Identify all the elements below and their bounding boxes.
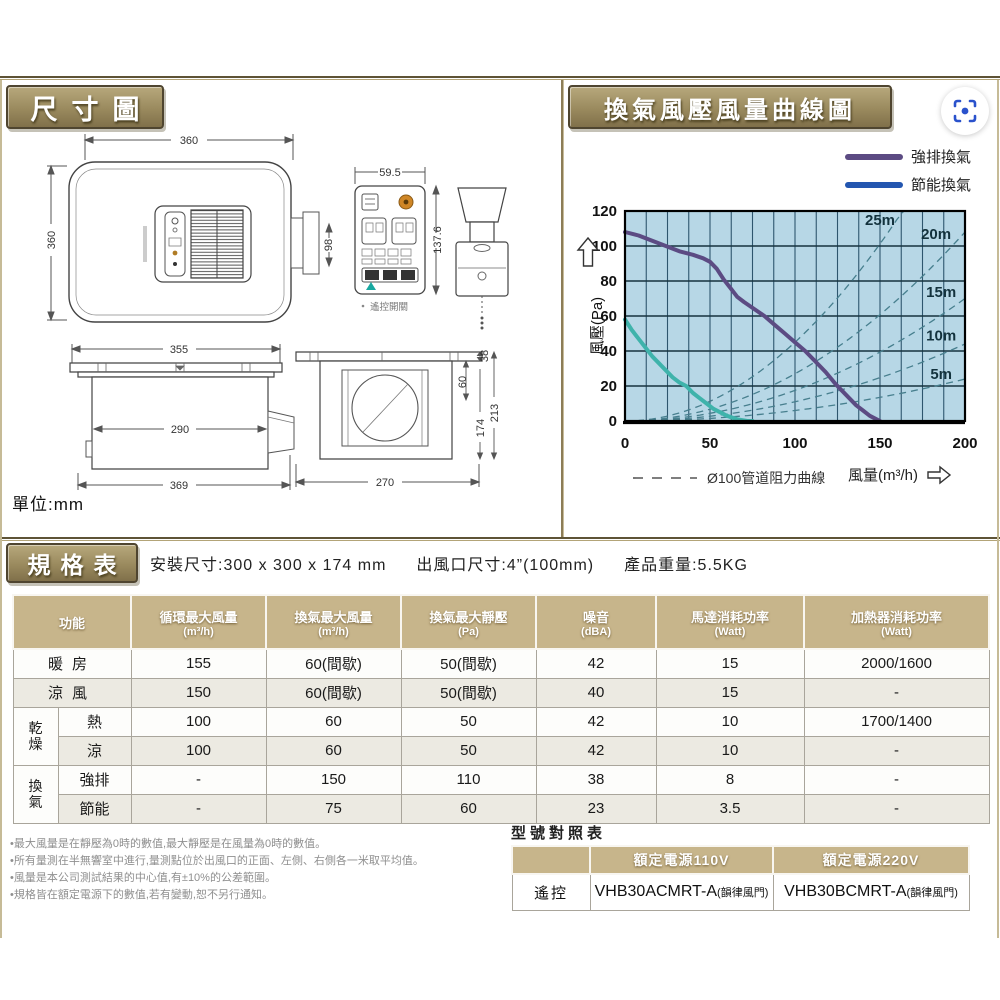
- footnote: •最大風量是在靜壓為0時的數值,最大靜壓是在風量為0時的數值。: [10, 836, 502, 853]
- spec-cell: 10: [656, 736, 804, 765]
- legend-label: 節能換氣: [911, 174, 971, 195]
- model-table-title: 型號對照表: [511, 822, 606, 843]
- dim-label: 38: [479, 350, 491, 362]
- resistance-curve-legend: Ø100管道阻力曲線: [633, 468, 825, 488]
- spec-cell: 50(間歇): [401, 649, 536, 678]
- spec-row: 涼10060504210-: [13, 736, 989, 765]
- function-label: 涼: [58, 736, 131, 765]
- spec-cell: 3.5: [656, 794, 804, 823]
- x-axis-label-text: 風量(m³/h): [848, 464, 918, 485]
- frame-mid-line: [0, 537, 1000, 541]
- spec-row: 換 氣強排-150110388-: [13, 765, 989, 794]
- spec-cell: 60: [266, 707, 401, 736]
- x-tick: 100: [782, 435, 807, 452]
- spec-cell: 8: [656, 765, 804, 794]
- dim-label: 213: [489, 404, 501, 422]
- legend-item: 強排換氣: [845, 146, 971, 167]
- footnote: •規格皆在額定電源下的數值,若有變動,恕不另行通知。: [10, 887, 502, 904]
- spec-cell: 75: [266, 794, 401, 823]
- dim-label: 360: [46, 231, 58, 249]
- y-tick: 120: [592, 203, 617, 220]
- section-title-spec: 規格表: [6, 543, 138, 583]
- spec-cell: -: [804, 678, 989, 707]
- dim-label: 137.6: [432, 226, 444, 254]
- section-title-curve: 換氣風壓風量曲線圖: [568, 85, 892, 129]
- col-header-function: 功能: [13, 595, 131, 649]
- function-group: 乾 燥: [13, 707, 58, 765]
- resistance-curve-label: 10m: [926, 328, 956, 345]
- model-row: 遙控 VHB30ACMRT-A(韻律風門) VHB30BCMRT-A(韻律風門): [512, 874, 969, 910]
- frame-divider: [561, 80, 564, 537]
- x-tick: 200: [952, 435, 977, 452]
- spec-cell: 40: [536, 678, 656, 707]
- spec-cell: -: [804, 794, 989, 823]
- function-label: 強排: [58, 765, 131, 794]
- right-arrow-icon: [926, 465, 952, 485]
- resistance-curve-label: 5m: [930, 366, 952, 383]
- install-size: 安裝尺寸:300 x 300 x 174 mm: [150, 551, 386, 575]
- col-header-noise: 噪音(dBA): [536, 595, 656, 649]
- spec-row: 節能-7560233.5-: [13, 794, 989, 823]
- function-label: 熱: [58, 707, 131, 736]
- col-header-static-pressure: 換氣最大靜壓(Pa): [401, 595, 536, 649]
- dim-label: 59.5: [379, 167, 400, 179]
- spec-cell: 23: [536, 794, 656, 823]
- x-axis-label: 風量(m³/h): [848, 464, 952, 485]
- unit-label: 單位:mm: [12, 490, 84, 515]
- x-tick: 150: [867, 435, 892, 452]
- col-header-circ-flow: 循環最大風量(m³/h): [131, 595, 266, 649]
- legend-swatch-strong: [845, 154, 903, 160]
- function-label: 涼風: [13, 678, 131, 707]
- resistance-curve-label: 15m: [926, 284, 956, 301]
- footnote: •所有量測在半無響室中進行,量測點位於出風口的正面、左側、右側各一米取平均值。: [10, 853, 502, 870]
- col-header-vent-flow: 換氣最大風量(m³/h): [266, 595, 401, 649]
- legend-item: 節能換氣: [845, 174, 971, 195]
- spec-cell: 42: [536, 649, 656, 678]
- x-tick: 0: [621, 435, 629, 452]
- col-header-motor-power: 馬達消耗功率(Watt): [656, 595, 804, 649]
- footnotes: •最大風量是在靜壓為0時的數值,最大靜壓是在風量為0時的數值。 •所有量測在半無…: [10, 836, 502, 904]
- legend-label: 強排換氣: [911, 146, 971, 167]
- model-header-110v: 額定電源110V: [590, 846, 773, 874]
- dim-label: 270: [376, 477, 394, 489]
- frame-right-edge: [997, 80, 999, 938]
- y-tick: 20: [600, 378, 617, 395]
- spec-cell: 110: [401, 765, 536, 794]
- spec-cell: 50(間歇): [401, 678, 536, 707]
- spec-table: 功能 循環最大風量(m³/h) 換氣最大風量(m³/h) 換氣最大靜壓(Pa) …: [12, 594, 990, 824]
- dim-label: 174: [475, 419, 487, 437]
- pq-chart: 5m10m15m20m25m02040608010012005010015020…: [572, 196, 992, 461]
- y-axis-label: 風壓(Pa): [589, 297, 606, 355]
- spec-cell: -: [804, 765, 989, 794]
- spec-cell: 60(間歇): [266, 678, 401, 707]
- footnote: •風量是本公司測試結果的中心值,有±10%的公差範圍。: [10, 870, 502, 887]
- spec-cell: 15: [656, 678, 804, 707]
- spec-cell: 1700/1400: [804, 707, 989, 736]
- spec-cell: 155: [131, 649, 266, 678]
- lens-icon: [952, 98, 978, 124]
- spec-cell: 15: [656, 649, 804, 678]
- spec-cell: 150: [131, 678, 266, 707]
- y-tick: 80: [600, 273, 617, 290]
- spec-table-body: 暖房15560(間歇)50(間歇)42152000/1600涼風15060(間歇…: [13, 649, 989, 823]
- spec-cell: -: [131, 794, 266, 823]
- spec-cell: 60(間歇): [266, 649, 401, 678]
- spec-header-row: 功能 循環最大風量(m³/h) 換氣最大風量(m³/h) 換氣最大靜壓(Pa) …: [13, 595, 989, 649]
- dim-label: 369: [170, 480, 188, 492]
- function-label: 暖房: [13, 649, 131, 678]
- spec-cell: 50: [401, 707, 536, 736]
- y-tick: 0: [609, 413, 617, 430]
- spec-cell: 100: [131, 736, 266, 765]
- model-header-220v: 額定電源220V: [773, 846, 969, 874]
- dashed-line-sample: [633, 474, 697, 482]
- resistance-curve-label: 20m: [921, 226, 951, 243]
- product-weight: 產品重量:5.5KG: [624, 551, 748, 575]
- spec-cell: -: [804, 736, 989, 765]
- top-view-drawing: 360 360 98: [35, 126, 335, 338]
- x-tick: 50: [702, 435, 719, 452]
- spec-row: 涼風15060(間歇)50(間歇)4015-: [13, 678, 989, 707]
- model-code-110v: VHB30ACMRT-A(韻律風門): [590, 874, 773, 910]
- image-search-lens-button[interactable]: [941, 87, 989, 135]
- spec-cell: 38: [536, 765, 656, 794]
- chart-legend: 強排換氣 節能換氣: [845, 146, 971, 195]
- remote-caption: 遙控開關: [370, 301, 408, 313]
- function-group: 換 氣: [13, 765, 58, 823]
- dim-label: 355: [170, 344, 188, 356]
- spec-cell: 42: [536, 707, 656, 736]
- frame-left-edge: [0, 80, 2, 938]
- dim-label: 360: [180, 135, 198, 147]
- spec-sheet: 尺寸圖 換氣風壓風量曲線圖 規格表 360: [0, 0, 1000, 1000]
- spec-cell: 2000/1600: [804, 649, 989, 678]
- spec-cell: 50: [401, 736, 536, 765]
- remote-drawing: 59.5 137.6: [330, 148, 560, 338]
- frame-top-line: [0, 76, 1000, 80]
- outlet-size: 出風口尺寸:4”(100mm): [416, 551, 594, 575]
- model-header-row: 額定電源110V 額定電源220V: [512, 846, 969, 874]
- function-label: 節能: [58, 794, 131, 823]
- legend-swatch-eco: [845, 182, 903, 188]
- spec-cell: 150: [266, 765, 401, 794]
- spec-row: 乾 燥熱100605042101700/1400: [13, 707, 989, 736]
- resistance-curve-label: 25m: [865, 212, 895, 229]
- col-header-heater-power: 加熱器消耗功率(Watt): [804, 595, 989, 649]
- dim-label: 60: [457, 376, 469, 388]
- spec-cell: 60: [266, 736, 401, 765]
- model-table: 額定電源110V 額定電源220V 遙控 VHB30ACMRT-A(韻律風門) …: [511, 845, 970, 911]
- spec-cell: 100: [131, 707, 266, 736]
- model-row-label: 遙控: [512, 874, 590, 910]
- spec-row: 暖房15560(間歇)50(間歇)42152000/1600: [13, 649, 989, 678]
- spec-cell: 60: [401, 794, 536, 823]
- dim-label: 290: [171, 424, 189, 436]
- spec-summary: 安裝尺寸:300 x 300 x 174 mm 出風口尺寸:4”(100mm) …: [150, 551, 748, 575]
- spec-cell: 42: [536, 736, 656, 765]
- resistance-curve-label: Ø100管道阻力曲線: [707, 468, 825, 488]
- model-header-empty: [512, 846, 590, 874]
- model-code-220v: VHB30BCMRT-A(韻律風門): [773, 874, 969, 910]
- side-view-b-drawing: 38 60 174 213 270: [282, 342, 507, 504]
- section-title-dimensions: 尺寸圖: [6, 85, 164, 129]
- spec-cell: 10: [656, 707, 804, 736]
- spec-cell: -: [131, 765, 266, 794]
